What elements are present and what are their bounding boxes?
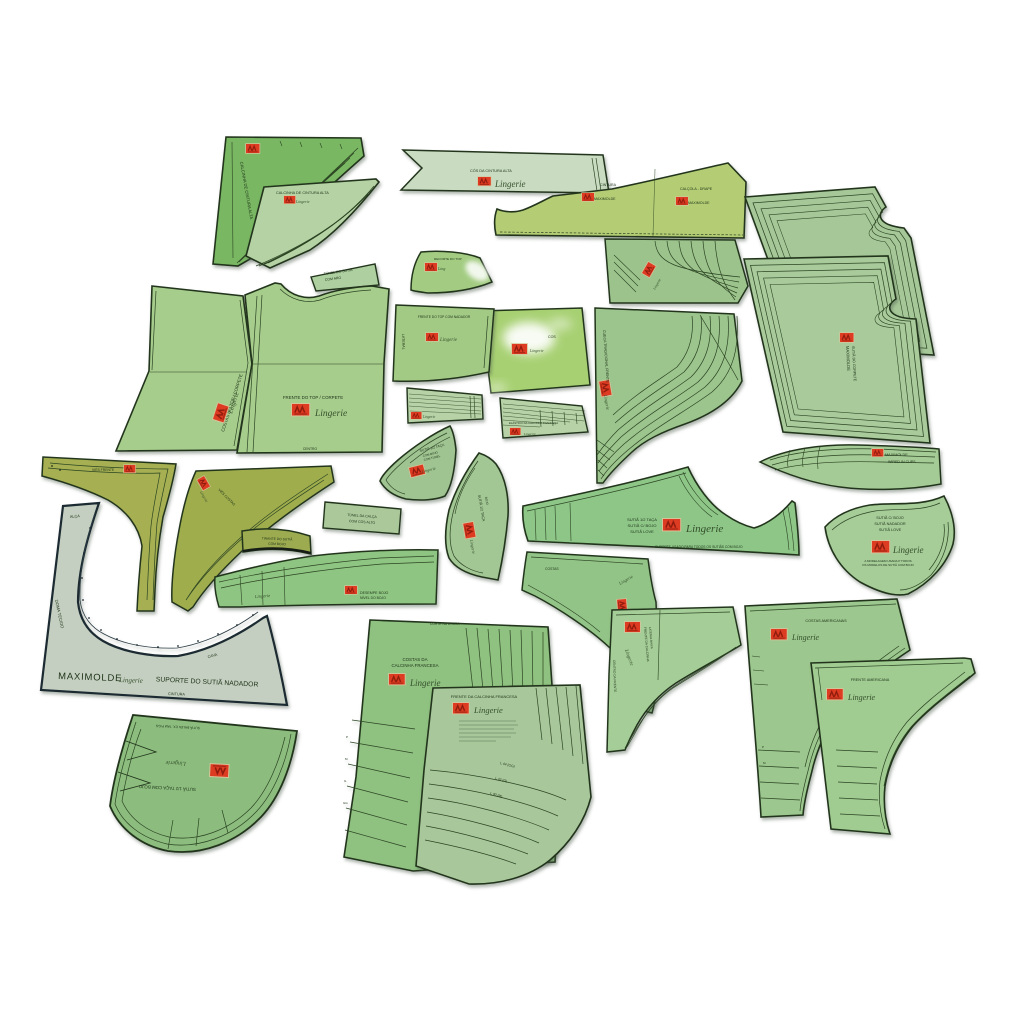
svg-text:CORTE NA DOBRA: CORTE NA DOBRA — [430, 622, 460, 626]
svg-text:CALÇOLA - DRAPE: CALÇOLA - DRAPE — [680, 187, 713, 191]
svg-text:COS: COS — [548, 335, 556, 339]
svg-text:CALCINHA FRANCESA: CALCINHA FRANCESA — [391, 663, 438, 668]
svg-text:FRENTE DA CALCINHA FRANCESA: FRENTE DA CALCINHA FRANCESA — [451, 694, 518, 699]
svg-text:RECORTE DO TOP: RECORTE DO TOP — [434, 257, 462, 261]
svg-text:Lingerie: Lingerie — [295, 199, 310, 204]
svg-text:Lingerie: Lingerie — [314, 409, 347, 419]
svg-text:Lingerie: Lingerie — [118, 676, 143, 685]
svg-text:VIÉS FRENTE: VIÉS FRENTE — [92, 467, 115, 472]
svg-text:GG: GG — [343, 801, 348, 805]
svg-text:Lingerie: Lingerie — [529, 348, 544, 353]
svg-text:WIRED IN CUPS: WIRED IN CUPS — [888, 460, 916, 464]
svg-text:Ling: Ling — [437, 266, 445, 271]
svg-text:CINTURA: CINTURA — [168, 692, 185, 697]
svg-text:Lingerie: Lingerie — [473, 705, 503, 715]
svg-text:Lingerie: Lingerie — [892, 545, 924, 555]
svg-text:SUTIÃ LOVE: SUTIÃ LOVE — [879, 527, 902, 532]
svg-text:SUTIÃ NADADOR: SUTIÃ NADADOR — [874, 521, 905, 526]
svg-text:Lingerie: Lingerie — [422, 415, 436, 419]
svg-text:MAXIMOLDE: MAXIMOLDE — [58, 671, 123, 684]
svg-text:DESEMPE BOJO: DESEMPE BOJO — [360, 591, 389, 595]
svg-text:ELÁSTICO DA CALCINHA FRANCESA: ELÁSTICO DA CALCINHA FRANCESA — [509, 421, 558, 425]
svg-text:FRENTE AMERICANA: FRENTE AMERICANA — [851, 678, 890, 682]
svg-text:COM BOJO: COM BOJO — [268, 542, 286, 547]
svg-text:CINTURA: CINTURA — [600, 183, 617, 187]
svg-text:Lingerie: Lingerie — [847, 693, 876, 702]
svg-text:FRENTE DO TOP / CORPETE: FRENTE DO TOP / CORPETE — [283, 395, 343, 400]
svg-text:SUTIÃ C/ BOJO: SUTIÃ C/ BOJO — [876, 515, 903, 520]
svg-text:Lingerie: Lingerie — [494, 179, 526, 189]
svg-text:CÓS DA CINTURA ALTA: CÓS DA CINTURA ALTA — [470, 168, 512, 173]
svg-text:P: P — [346, 735, 348, 739]
svg-text:NÍVEL DO BOJO: NÍVEL DO BOJO — [360, 596, 386, 600]
svg-text:SUTIÃ 1/2 TAÇA: SUTIÃ 1/2 TAÇA — [627, 517, 657, 522]
svg-text:OS MODELOS DE SUTIÃ COM BOJO: OS MODELOS DE SUTIÃ COM BOJO — [862, 562, 914, 567]
svg-text:Lingerie: Lingerie — [409, 678, 441, 688]
svg-text:Lingerie: Lingerie — [165, 759, 187, 766]
svg-text:COSTAS AMERICANAS: COSTAS AMERICANAS — [805, 619, 847, 623]
svg-text:P: P — [762, 745, 764, 749]
svg-text:Lingerie: Lingerie — [791, 633, 820, 642]
svg-text:COSTAS DA: COSTAS DA — [402, 657, 427, 662]
svg-text:LATERAL: LATERAL — [401, 334, 406, 350]
svg-text:CENTRO: CENTRO — [303, 447, 318, 451]
svg-text:COSTAS: COSTAS — [545, 567, 559, 571]
svg-text:FRENTE DO TOP COM NADADOR: FRENTE DO TOP COM NADADOR — [418, 315, 471, 319]
svg-text:SUTIÃ C/ BOJO: SUTIÃ C/ BOJO — [628, 523, 657, 528]
svg-text:Lingerie: Lingerie — [685, 523, 723, 535]
svg-text:MAXIMOLDE: MAXIMOLDE — [885, 453, 908, 457]
svg-text:MAXIMOLDE: MAXIMOLDE — [688, 201, 710, 205]
svg-text:Lingerie: Lingerie — [523, 432, 536, 436]
svg-text:CALCINHA DE CINTURA ALTA: CALCINHA DE CINTURA ALTA — [276, 191, 329, 195]
svg-text:MAXIMOLDE: MAXIMOLDE — [594, 197, 616, 201]
svg-text:SUPORTE USADO PARA TODOS OS SU: SUPORTE USADO PARA TODOS OS SUTIÃS COM B… — [655, 544, 743, 549]
svg-text:Lingerie: Lingerie — [439, 338, 458, 343]
svg-text:SUTIÃ LOVE: SUTIÃ LOVE — [630, 529, 654, 534]
